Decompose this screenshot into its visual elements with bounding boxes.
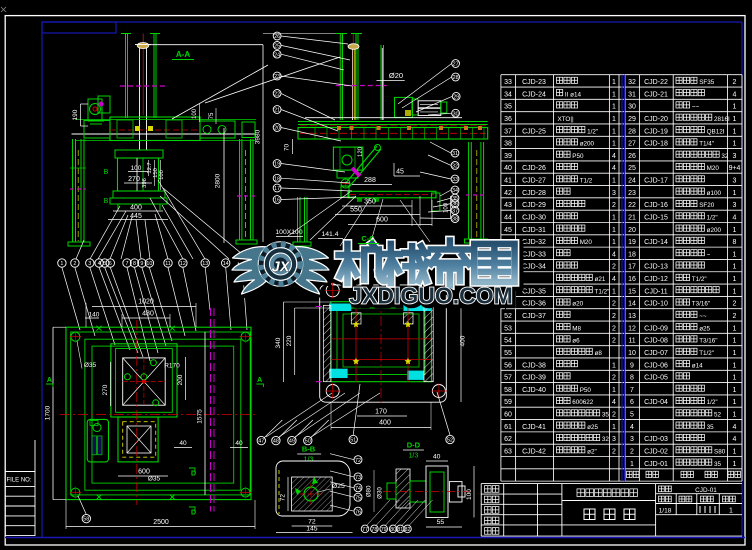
svg-text:1: 1: [733, 104, 737, 111]
svg-text:CJD-08: CJD-08: [644, 338, 668, 345]
svg-text:4: 4: [612, 276, 616, 283]
svg-text:1020: 1020: [138, 299, 154, 306]
svg-text:1: 1: [733, 325, 737, 332]
svg-text:4: 4: [733, 214, 737, 221]
svg-text:1: 1: [733, 251, 737, 258]
svg-text:14: 14: [628, 301, 636, 308]
svg-text:3: 3: [733, 202, 737, 209]
svg-text:52: 52: [714, 412, 722, 419]
svg-text:M20: M20: [707, 165, 720, 172]
svg-text:8: 8: [733, 239, 737, 246]
svg-text:B-B: B-B: [302, 445, 316, 454]
svg-text:26: 26: [628, 153, 636, 160]
svg-text:200: 200: [177, 374, 184, 385]
svg-text:28: 28: [453, 75, 459, 81]
svg-text:1: 1: [612, 214, 616, 221]
svg-text:20: 20: [628, 227, 636, 234]
svg-text:ø6: ø6: [572, 338, 580, 345]
svg-text:18: 18: [628, 251, 636, 258]
svg-text:32: 32: [602, 436, 610, 443]
svg-text:49: 49: [289, 439, 295, 445]
svg-text:CJD-10: CJD-10: [644, 301, 668, 308]
svg-text:6: 6: [109, 261, 112, 267]
svg-text:48: 48: [273, 439, 279, 445]
svg-text:21: 21: [274, 108, 280, 114]
svg-text:9+4: 9+4: [729, 165, 741, 172]
svg-text:82: 82: [405, 527, 411, 533]
svg-text:CJD-36: CJD-36: [522, 301, 546, 308]
svg-text:8: 8: [630, 375, 634, 382]
svg-text:29: 29: [628, 116, 636, 123]
svg-text:61: 61: [504, 424, 512, 431]
svg-text:75: 75: [209, 112, 215, 119]
svg-text:1: 1: [733, 288, 737, 295]
svg-text:35: 35: [602, 412, 610, 419]
svg-text:1: 1: [612, 91, 616, 98]
svg-text:1: 1: [612, 387, 616, 394]
svg-text:B: B: [104, 169, 109, 176]
svg-text:35: 35: [707, 424, 715, 431]
svg-text:1: 1: [612, 128, 616, 135]
svg-text:30: 30: [453, 111, 459, 117]
svg-text:600622: 600622: [572, 399, 594, 406]
svg-text:4: 4: [733, 424, 737, 431]
svg-text:35: 35: [714, 461, 722, 468]
svg-text:CJD-16: CJD-16: [644, 202, 668, 209]
svg-text:T1/2": T1/2": [692, 276, 707, 283]
svg-text:400: 400: [130, 205, 142, 212]
svg-text:4: 4: [733, 436, 737, 443]
svg-text:55: 55: [437, 519, 445, 526]
svg-text:1: 1: [612, 239, 616, 246]
svg-text:3: 3: [88, 261, 91, 267]
svg-text:CJD-33: CJD-33: [522, 251, 546, 258]
svg-text:T3/16": T3/16": [699, 338, 717, 345]
svg-text:73: 73: [355, 475, 361, 481]
svg-text:2500: 2500: [153, 519, 169, 526]
svg-text:A: A: [47, 377, 52, 384]
svg-text:CJD-32: CJD-32: [522, 239, 546, 246]
svg-text:58: 58: [83, 517, 89, 523]
svg-text:45: 45: [396, 169, 404, 176]
svg-text:1: 1: [612, 116, 616, 123]
svg-text:445: 445: [130, 213, 142, 220]
svg-text:33: 33: [504, 79, 512, 86]
svg-text:32: 32: [721, 153, 729, 160]
svg-text:340: 340: [275, 337, 282, 348]
svg-text:Ø35: Ø35: [84, 362, 97, 369]
svg-text:B: B: [104, 198, 109, 205]
svg-text:Ø20: Ø20: [389, 71, 403, 80]
svg-text:140: 140: [89, 311, 100, 318]
svg-text:1: 1: [612, 288, 616, 295]
svg-text:4: 4: [612, 165, 616, 172]
svg-text:CJD-28: CJD-28: [522, 190, 546, 197]
svg-text:60: 60: [504, 412, 512, 419]
svg-text:31: 31: [628, 91, 636, 98]
svg-text:25: 25: [628, 165, 636, 172]
svg-text:CJD-06: CJD-06: [644, 362, 668, 369]
svg-text:CJD-26: CJD-26: [522, 165, 546, 172]
svg-text:120: 120: [358, 146, 364, 157]
svg-text:45: 45: [504, 227, 512, 234]
svg-text:4: 4: [630, 424, 634, 431]
svg-text:1: 1: [733, 461, 737, 468]
svg-text:2: 2: [612, 202, 616, 209]
svg-text:52: 52: [504, 313, 512, 320]
svg-text:37: 37: [504, 128, 512, 135]
svg-text:2: 2: [733, 301, 737, 308]
svg-text:18: 18: [274, 176, 280, 182]
svg-text:1: 1: [733, 264, 737, 271]
svg-text:1: 1: [612, 104, 616, 111]
svg-text:70: 70: [284, 144, 291, 152]
svg-text:100: 100: [466, 489, 473, 500]
svg-text:59: 59: [504, 399, 512, 406]
svg-text:CJD-37: CJD-37: [522, 313, 546, 320]
svg-text:78: 78: [371, 527, 377, 533]
svg-text:2: 2: [612, 313, 616, 320]
svg-text:38: 38: [452, 217, 458, 223]
svg-text:CJD-01: CJD-01: [695, 487, 717, 494]
svg-text:2: 2: [73, 261, 76, 267]
svg-text:4: 4: [612, 251, 616, 258]
svg-text:40: 40: [179, 440, 187, 447]
svg-text:CJD-41: CJD-41: [522, 424, 546, 431]
svg-text:D-D: D-D: [407, 441, 421, 450]
svg-text:19: 19: [628, 239, 636, 246]
svg-text:36: 36: [504, 116, 512, 123]
svg-text:2: 2: [612, 412, 616, 419]
svg-text:1: 1: [733, 190, 737, 197]
svg-text:350: 350: [364, 199, 376, 206]
svg-text:79: 79: [381, 527, 387, 533]
svg-text:7: 7: [630, 387, 634, 394]
svg-text:4: 4: [733, 91, 737, 98]
svg-text:3: 3: [612, 190, 616, 197]
svg-text:9: 9: [630, 362, 634, 369]
svg-text:ø8: ø8: [595, 350, 603, 357]
svg-text:2816I: 2816I: [714, 116, 730, 123]
svg-text:400: 400: [460, 335, 467, 346]
svg-text:2: 2: [630, 448, 634, 455]
svg-text:SF20: SF20: [699, 202, 715, 209]
svg-text:25: 25: [274, 44, 280, 50]
svg-text:38: 38: [504, 141, 512, 148]
svg-text:CJD-27: CJD-27: [522, 178, 546, 185]
svg-text:1/18: 1/18: [659, 508, 672, 515]
svg-text:32: 32: [628, 79, 636, 86]
svg-text:23: 23: [628, 190, 636, 197]
svg-text:2: 2: [612, 325, 616, 332]
svg-text:CJD-38: CJD-38: [522, 362, 546, 369]
svg-text:Ø30: Ø30: [377, 487, 384, 499]
svg-text:1/3: 1/3: [304, 457, 314, 464]
svg-text:76: 76: [355, 509, 361, 515]
svg-text:12: 12: [628, 325, 636, 332]
svg-text:R170: R170: [164, 363, 180, 370]
svg-text:3: 3: [630, 436, 634, 443]
svg-text:JX: JX: [272, 260, 291, 276]
svg-text:M20: M20: [580, 239, 593, 246]
svg-text:1: 1: [630, 461, 634, 468]
svg-text:288: 288: [364, 177, 376, 184]
svg-text:17: 17: [628, 264, 636, 271]
svg-text:1: 1: [733, 362, 737, 369]
svg-text:400: 400: [379, 420, 391, 427]
svg-text:55: 55: [504, 350, 512, 357]
svg-text:1: 1: [612, 178, 616, 185]
svg-text:11: 11: [628, 338, 635, 345]
svg-text:CJD-18: CJD-18: [644, 141, 668, 148]
svg-text:31: 31: [452, 151, 458, 157]
svg-text:3: 3: [733, 153, 737, 160]
svg-text:600: 600: [138, 468, 150, 475]
svg-text:A-A: A-A: [176, 50, 190, 59]
svg-text:CJD-17: CJD-17: [644, 178, 668, 185]
svg-text:4: 4: [98, 261, 101, 267]
svg-text:270: 270: [128, 176, 140, 183]
svg-text:1: 1: [733, 448, 737, 455]
svg-text:S80: S80: [714, 448, 726, 455]
svg-text:ø14: ø14: [692, 362, 703, 369]
svg-text:Ø80: Ø80: [366, 485, 373, 497]
svg-text:2: 2: [612, 264, 616, 271]
svg-text:3: 3: [733, 178, 737, 185]
svg-text:4: 4: [612, 399, 616, 406]
svg-text:47: 47: [258, 439, 264, 445]
svg-text:72: 72: [355, 458, 361, 464]
svg-text:52: 52: [447, 438, 453, 444]
svg-text:22: 22: [628, 202, 636, 209]
svg-text:13: 13: [628, 313, 636, 320]
svg-text:145: 145: [306, 525, 318, 532]
svg-text:141.4: 141.4: [321, 231, 338, 238]
svg-text:44: 44: [504, 214, 512, 221]
svg-text:4: 4: [612, 153, 616, 160]
svg-text:ø21: ø21: [595, 276, 606, 283]
svg-text:CJD-02: CJD-02: [644, 448, 668, 455]
svg-text:1: 1: [733, 387, 737, 394]
svg-text:1: 1: [733, 412, 737, 419]
svg-text:220: 220: [286, 335, 293, 346]
svg-text:ø200: ø200: [707, 227, 722, 234]
svg-text:1: 1: [733, 116, 737, 123]
svg-text:34: 34: [504, 91, 512, 98]
svg-text:CJD-14: CJD-14: [644, 239, 668, 246]
svg-text:27: 27: [453, 62, 459, 68]
svg-text:1/3: 1/3: [409, 453, 419, 460]
svg-text:41: 41: [504, 178, 512, 185]
svg-text:CJD-15: CJD-15: [644, 214, 668, 221]
svg-text:CJD-21: CJD-21: [644, 91, 668, 98]
svg-text:33: 33: [452, 177, 458, 183]
svg-text:1: 1: [729, 508, 733, 515]
svg-text:63: 63: [504, 448, 512, 455]
svg-text:P50: P50: [572, 153, 584, 160]
svg-text:SF35: SF35: [699, 79, 715, 86]
svg-text:CJD-19: CJD-19: [644, 128, 668, 135]
svg-text:100: 100: [131, 165, 142, 172]
svg-text:~~: ~~: [692, 104, 700, 111]
svg-text:7: 7: [126, 261, 129, 267]
svg-text:62: 62: [504, 436, 512, 443]
svg-text:16: 16: [274, 198, 280, 204]
svg-text:1: 1: [612, 79, 616, 86]
svg-text:81: 81: [397, 527, 403, 533]
svg-text:P50: P50: [580, 387, 592, 394]
svg-text:1: 1: [733, 276, 737, 283]
svg-text:42: 42: [504, 190, 512, 197]
svg-text:1/2": 1/2": [707, 399, 718, 406]
svg-text:21: 21: [628, 214, 636, 221]
svg-text:8: 8: [133, 261, 136, 267]
svg-text:2: 2: [612, 448, 616, 455]
svg-text:34: 34: [452, 188, 458, 194]
svg-text:2: 2: [733, 79, 737, 86]
svg-text:1: 1: [733, 375, 737, 382]
svg-text:56: 56: [504, 362, 512, 369]
svg-text:CJD-39: CJD-39: [522, 375, 546, 382]
svg-text:11: 11: [165, 261, 171, 267]
svg-text:74: 74: [355, 486, 361, 492]
svg-text:1700: 1700: [45, 405, 52, 420]
svg-text:CJD-11: CJD-11: [644, 288, 667, 295]
svg-text:39: 39: [504, 153, 512, 160]
svg-text:28: 28: [628, 128, 636, 135]
svg-text:24: 24: [274, 52, 280, 58]
svg-text:5: 5: [103, 261, 106, 267]
svg-text:1: 1: [733, 141, 737, 148]
svg-text:22: 22: [274, 92, 280, 98]
svg-text:CJD-04: CJD-04: [644, 399, 668, 406]
svg-text:51: 51: [350, 438, 356, 444]
svg-text:1: 1: [60, 261, 63, 267]
svg-text:T1/2: T1/2: [580, 178, 593, 185]
svg-text:54: 54: [504, 338, 512, 345]
svg-text:CJD-31: CJD-31: [522, 227, 546, 234]
svg-text:2: 2: [733, 313, 737, 320]
svg-text:27: 27: [628, 141, 636, 148]
svg-text:2: 2: [612, 301, 616, 308]
svg-text:CJD-07: CJD-07: [644, 350, 668, 357]
svg-text:57: 57: [504, 375, 512, 382]
svg-text:CJD-23: CJD-23: [522, 79, 546, 86]
svg-text:T1/2": T1/2": [699, 350, 714, 357]
svg-text:15: 15: [628, 288, 636, 295]
svg-text:190: 190: [72, 109, 79, 120]
svg-text:CJD-34: CJD-34: [522, 264, 546, 271]
svg-text:JXDIGUO.COM: JXDIGUO.COM: [349, 283, 513, 309]
svg-text:CJD-24: CJD-24: [522, 91, 546, 98]
svg-text:2: 2: [612, 375, 616, 382]
svg-text:1: 1: [733, 128, 737, 135]
svg-text:396: 396: [142, 178, 148, 188]
svg-text:14: 14: [223, 261, 229, 267]
svg-text:M8: M8: [572, 325, 581, 332]
svg-text:75: 75: [355, 495, 361, 501]
svg-text:CJD-01: CJD-01: [644, 461, 668, 468]
svg-text:3980: 3980: [255, 129, 262, 144]
svg-text:CJD-25: CJD-25: [522, 128, 546, 135]
svg-text:12: 12: [180, 261, 186, 267]
svg-text:CJD-22: CJD-22: [644, 79, 668, 86]
svg-text:1/2": 1/2": [707, 214, 718, 221]
svg-text:37: 37: [452, 209, 458, 215]
svg-text:CJD-42: CJD-42: [522, 448, 546, 455]
svg-text:20: 20: [274, 126, 280, 132]
svg-text:6: 6: [630, 399, 634, 406]
svg-text:ø2": ø2": [587, 448, 597, 455]
svg-text:170: 170: [375, 409, 387, 416]
svg-text:FILE NO:: FILE NO:: [6, 478, 31, 484]
svg-text:1: 1: [733, 350, 737, 357]
svg-text:Ø35: Ø35: [148, 475, 161, 482]
svg-text:T1/2": T1/2": [595, 288, 610, 295]
svg-text:CJD-30: CJD-30: [522, 214, 546, 221]
svg-text:26: 26: [274, 34, 280, 40]
svg-text:CJD-35: CJD-35: [522, 288, 546, 295]
svg-text:3: 3: [612, 436, 616, 443]
svg-text:1: 1: [612, 362, 616, 369]
svg-text:480: 480: [142, 310, 154, 317]
svg-text:1: 1: [733, 399, 737, 406]
svg-text:ø100: ø100: [707, 190, 722, 197]
svg-text:100: 100: [192, 108, 198, 119]
svg-text:ø200: ø200: [580, 141, 595, 148]
svg-text:24: 24: [628, 178, 636, 185]
svg-text:1/2": 1/2": [587, 128, 598, 135]
svg-text:1: 1: [612, 424, 616, 431]
svg-text:1: 1: [733, 338, 737, 345]
svg-text:1: 1: [612, 141, 616, 148]
svg-text:270: 270: [102, 384, 109, 395]
svg-text:II ø14: II ø14: [565, 91, 582, 98]
svg-text:16: 16: [628, 276, 636, 283]
svg-text:40: 40: [235, 440, 243, 447]
svg-text:10: 10: [146, 261, 152, 267]
svg-text:40: 40: [504, 165, 512, 172]
svg-text:T1/4": T1/4": [699, 141, 714, 148]
svg-text:CJD-12: CJD-12: [644, 276, 668, 283]
svg-text:58: 58: [504, 387, 512, 394]
svg-text:1575: 1575: [197, 409, 204, 424]
svg-text:13: 13: [202, 261, 208, 267]
svg-text:2800: 2800: [215, 173, 222, 188]
svg-text:CJD-05: CJD-05: [644, 375, 668, 382]
svg-text:ø20: ø20: [572, 301, 583, 308]
svg-text:100: 100: [159, 170, 165, 180]
svg-text:53: 53: [504, 325, 512, 332]
svg-text:T3/16": T3/16": [692, 301, 710, 308]
svg-text:ø25: ø25: [587, 424, 598, 431]
svg-text:77: 77: [362, 527, 368, 533]
svg-text:40: 40: [433, 454, 441, 461]
svg-text:10: 10: [628, 350, 636, 357]
svg-text:ø25: ø25: [699, 325, 710, 332]
svg-text:QB12I: QB12I: [707, 128, 725, 135]
svg-text:C-C: C-C: [361, 234, 375, 243]
svg-text:CJD-20: CJD-20: [644, 116, 668, 123]
svg-text:72: 72: [280, 494, 287, 502]
svg-text:9: 9: [140, 261, 143, 267]
svg-text:1: 1: [612, 227, 616, 234]
svg-text:550: 550: [350, 207, 362, 214]
svg-text:80: 80: [390, 527, 396, 533]
svg-text:CJD-13: CJD-13: [644, 264, 668, 271]
svg-text:CJD-40: CJD-40: [522, 387, 546, 394]
svg-text:17: 17: [274, 186, 280, 192]
